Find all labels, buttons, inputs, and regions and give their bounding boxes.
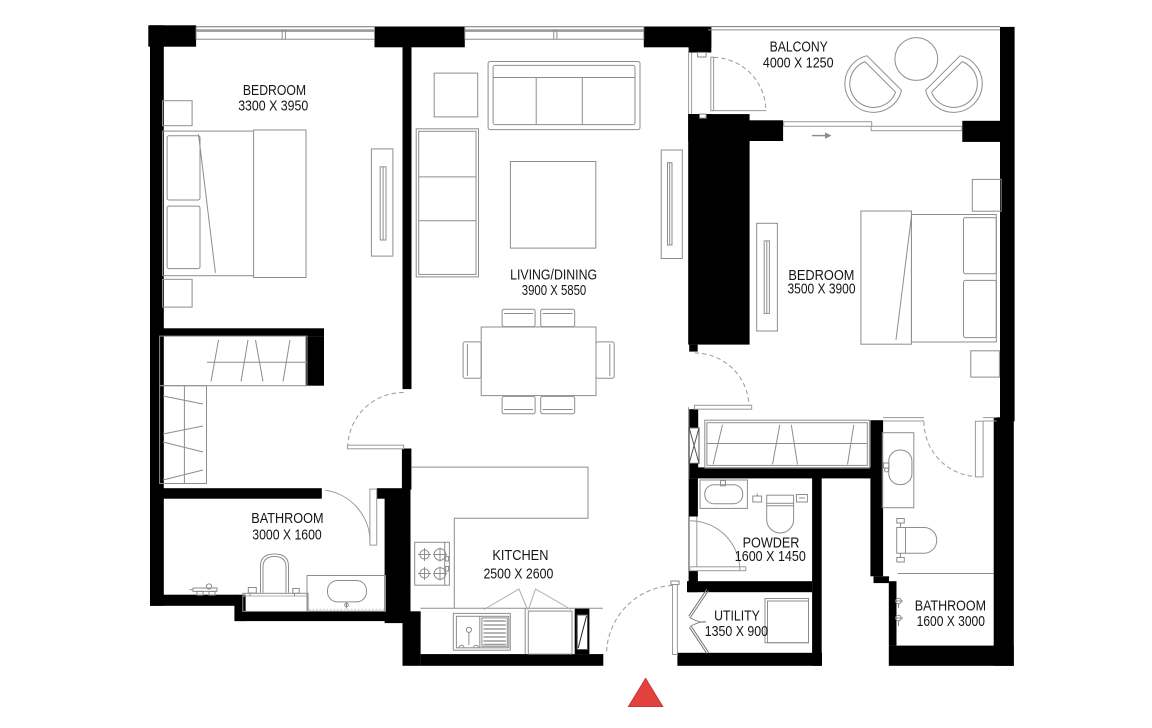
svg-text:3900 X 5850: 3900 X 5850 [522,283,587,299]
svg-text:3000 X 1600: 3000 X 1600 [252,528,321,544]
svg-text:BATHROOM: BATHROOM [251,511,323,527]
svg-text:1350 X 900: 1350 X 900 [705,624,768,640]
svg-text:BALCONY: BALCONY [770,40,828,56]
svg-text:BATHROOM: BATHROOM [915,599,986,615]
svg-text:3500 X 3900: 3500 X 3900 [788,281,856,297]
svg-text:2500 X 2600: 2500 X 2600 [483,566,553,582]
svg-text:LIVING/DINING: LIVING/DINING [510,268,597,284]
svg-text:BEDROOM: BEDROOM [243,83,306,99]
svg-text:1600 X 1450: 1600 X 1450 [735,549,806,565]
svg-text:KITCHEN: KITCHEN [492,548,548,564]
svg-text:4000 X 1250: 4000 X 1250 [763,55,834,71]
svg-text:3300 X 3950: 3300 X 3950 [238,99,308,115]
svg-text:UTILITY: UTILITY [714,608,760,624]
svg-text:1600 X 3000: 1600 X 3000 [917,614,985,630]
